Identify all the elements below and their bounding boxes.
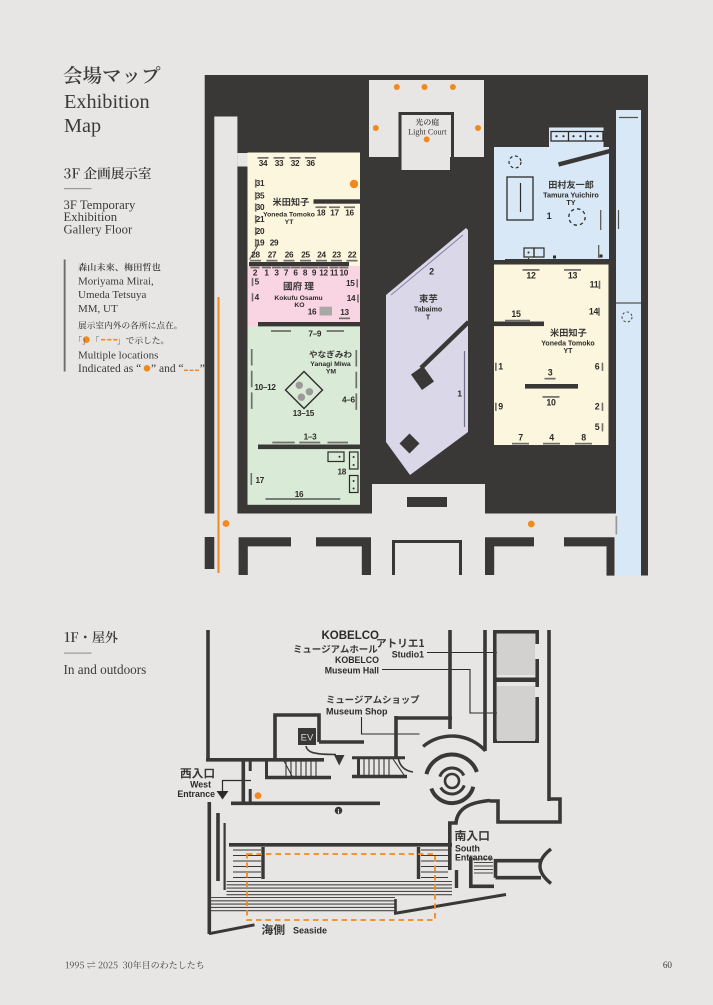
svg-text:KOBELCO: KOBELCO bbox=[322, 630, 380, 642]
svg-text:16: 16 bbox=[308, 307, 317, 316]
svg-text:1: 1 bbox=[457, 389, 462, 399]
svg-text:13–15: 13–15 bbox=[293, 409, 315, 418]
svg-text:MM, UT: MM, UT bbox=[78, 303, 118, 315]
svg-text:Yanagi Miwa: Yanagi Miwa bbox=[310, 361, 351, 368]
svg-text:Map: Map bbox=[64, 115, 101, 137]
svg-text:2: 2 bbox=[253, 269, 258, 278]
svg-text:16: 16 bbox=[345, 208, 354, 217]
svg-text:9: 9 bbox=[312, 269, 317, 278]
svg-text:8: 8 bbox=[581, 433, 586, 443]
svg-text:Gallery Floor: Gallery Floor bbox=[64, 222, 133, 236]
svg-text:18: 18 bbox=[317, 208, 326, 217]
svg-text:1: 1 bbox=[498, 362, 503, 372]
svg-text:14: 14 bbox=[589, 307, 599, 317]
svg-text:31: 31 bbox=[256, 179, 265, 188]
svg-text:Seaside: Seaside bbox=[293, 926, 327, 936]
svg-text:Museum Hall: Museum Hall bbox=[325, 666, 379, 676]
svg-text:1–3: 1–3 bbox=[304, 433, 318, 442]
svg-text:26: 26 bbox=[285, 251, 294, 260]
svg-text:YT: YT bbox=[564, 348, 574, 355]
svg-text:T: T bbox=[426, 315, 431, 322]
svg-text:14: 14 bbox=[347, 294, 356, 303]
svg-text:18: 18 bbox=[337, 467, 346, 476]
svg-text:9: 9 bbox=[498, 402, 503, 412]
svg-text:3: 3 bbox=[274, 269, 279, 278]
svg-text:Entrance: Entrance bbox=[177, 789, 215, 799]
svg-text:12: 12 bbox=[526, 271, 536, 281]
svg-text:7: 7 bbox=[518, 433, 523, 443]
svg-text:Multiple locations: Multiple locations bbox=[78, 349, 158, 361]
svg-text:7–9: 7–9 bbox=[308, 330, 322, 339]
svg-text:Museum Shop: Museum Shop bbox=[326, 707, 388, 717]
svg-text:13: 13 bbox=[340, 308, 349, 317]
svg-text:YT: YT bbox=[285, 219, 295, 226]
svg-text:Indicated as “: Indicated as “ bbox=[78, 363, 141, 375]
svg-text:Umeda Tetsuya: Umeda Tetsuya bbox=[78, 289, 146, 301]
svg-text:11: 11 bbox=[330, 269, 339, 278]
svg-text:10–12: 10–12 bbox=[254, 383, 276, 392]
svg-text:34: 34 bbox=[259, 159, 268, 168]
svg-text:Exhibition: Exhibition bbox=[64, 91, 150, 113]
svg-text:” and “: ” and “ bbox=[151, 363, 184, 375]
svg-text:22: 22 bbox=[348, 251, 357, 260]
svg-text:KO: KO bbox=[294, 302, 304, 309]
svg-text:3: 3 bbox=[548, 368, 553, 378]
svg-text:32: 32 bbox=[291, 159, 300, 168]
svg-text:i: i bbox=[338, 808, 340, 815]
svg-text:24: 24 bbox=[317, 251, 326, 260]
svg-text:4–6: 4–6 bbox=[342, 396, 356, 405]
svg-text:11: 11 bbox=[590, 280, 599, 290]
svg-text:7: 7 bbox=[284, 269, 289, 278]
svg-text:Studio1: Studio1 bbox=[392, 650, 424, 660]
svg-text:Entrance: Entrance bbox=[455, 853, 493, 863]
svg-text:12: 12 bbox=[319, 269, 328, 278]
svg-text:10: 10 bbox=[340, 269, 349, 278]
svg-text:33: 33 bbox=[275, 159, 284, 168]
svg-text:27: 27 bbox=[268, 251, 277, 260]
svg-text:4: 4 bbox=[255, 293, 260, 302]
svg-text:TY: TY bbox=[566, 198, 575, 207]
svg-text:20: 20 bbox=[256, 227, 265, 236]
svg-text:13: 13 bbox=[568, 271, 578, 281]
svg-text:Light Court: Light Court bbox=[408, 128, 447, 137]
svg-text:In and outdoors: In and outdoors bbox=[64, 662, 147, 677]
svg-text:Yoneda Tomoko: Yoneda Tomoko bbox=[541, 341, 594, 348]
svg-text:Kokufu Osamu: Kokufu Osamu bbox=[274, 295, 322, 302]
svg-text:”: ” bbox=[200, 363, 205, 375]
svg-text:1: 1 bbox=[547, 211, 552, 221]
svg-text:36: 36 bbox=[306, 159, 315, 168]
svg-text:2: 2 bbox=[595, 402, 600, 412]
svg-text:16: 16 bbox=[295, 490, 304, 499]
svg-text:EV: EV bbox=[301, 733, 314, 744]
svg-text:1: 1 bbox=[264, 269, 269, 278]
svg-text:23: 23 bbox=[332, 251, 341, 260]
svg-text:60: 60 bbox=[663, 960, 673, 970]
svg-text:KOBELCO: KOBELCO bbox=[335, 655, 379, 665]
svg-text:10: 10 bbox=[546, 398, 556, 408]
svg-text:YM: YM bbox=[326, 368, 337, 375]
svg-text:17: 17 bbox=[255, 476, 264, 485]
svg-text:6: 6 bbox=[293, 269, 298, 278]
svg-text:17: 17 bbox=[330, 208, 339, 217]
svg-text:Moriyama Mirai,: Moriyama Mirai, bbox=[78, 276, 154, 288]
svg-text:2: 2 bbox=[429, 267, 434, 277]
svg-text:25: 25 bbox=[301, 251, 310, 260]
svg-text:4: 4 bbox=[549, 433, 554, 443]
svg-text:Yoneda Tomoko: Yoneda Tomoko bbox=[263, 211, 315, 218]
svg-text:5: 5 bbox=[255, 278, 260, 287]
svg-text:35: 35 bbox=[256, 192, 265, 201]
svg-text:West: West bbox=[190, 780, 211, 790]
svg-text:8: 8 bbox=[303, 269, 308, 278]
svg-text:6: 6 bbox=[595, 362, 600, 372]
svg-text:15: 15 bbox=[346, 279, 355, 288]
svg-text:15: 15 bbox=[511, 309, 521, 319]
svg-text:5: 5 bbox=[595, 422, 600, 432]
svg-text:Tabaimo: Tabaimo bbox=[414, 307, 442, 314]
svg-text:29: 29 bbox=[270, 239, 279, 248]
